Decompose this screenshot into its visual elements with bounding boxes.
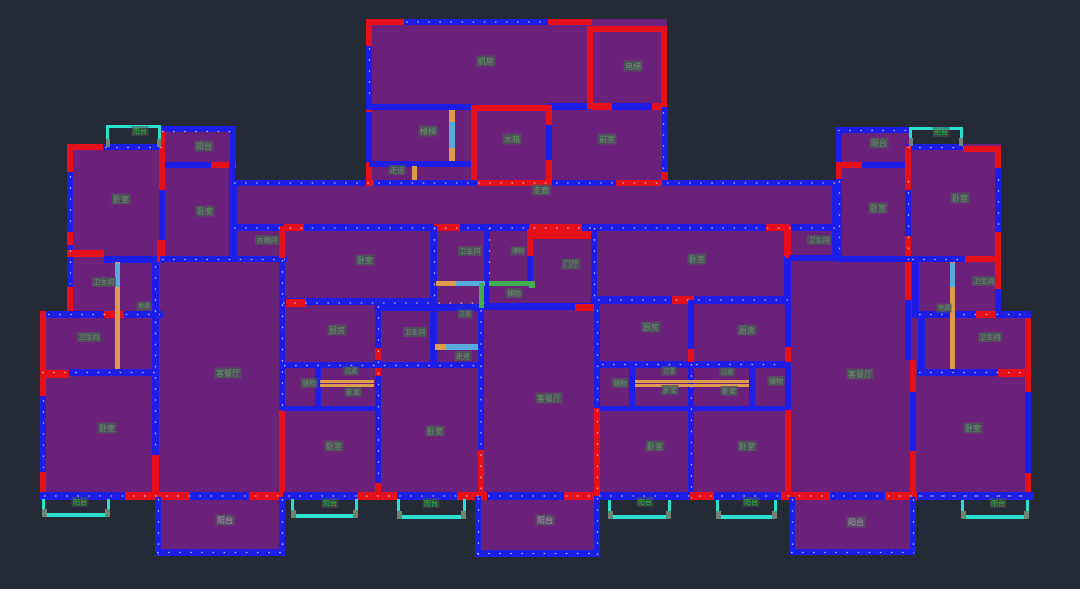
svg-text:储物: 储物 xyxy=(512,247,524,255)
svg-text:阳台: 阳台 xyxy=(196,141,212,151)
svg-text:过道: 过道 xyxy=(345,367,357,375)
svg-text:卧室: 卧室 xyxy=(663,386,677,395)
svg-text:阳台: 阳台 xyxy=(73,498,87,507)
svg-text:阳台: 阳台 xyxy=(744,498,758,507)
svg-text:厨房: 厨房 xyxy=(643,322,659,332)
svg-text:客餐厅: 客餐厅 xyxy=(216,368,240,378)
svg-text:卫生间: 卫生间 xyxy=(974,277,995,286)
svg-text:卧室: 卧室 xyxy=(427,426,443,436)
svg-text:卧室: 卧室 xyxy=(952,193,968,203)
svg-text:卫生间: 卫生间 xyxy=(94,278,115,287)
svg-text:过道: 过道 xyxy=(721,368,733,376)
svg-text:客餐厅: 客餐厅 xyxy=(848,369,872,379)
svg-text:阳台: 阳台 xyxy=(991,499,1005,508)
svg-text:卧室: 卧室 xyxy=(870,203,886,213)
svg-text:门厅: 门厅 xyxy=(563,259,579,269)
svg-text:阳台: 阳台 xyxy=(537,515,553,525)
svg-text:卧室: 卧室 xyxy=(326,441,342,451)
svg-text:储物: 储物 xyxy=(769,377,783,386)
svg-text:卧室: 卧室 xyxy=(346,388,360,397)
svg-text:走廊: 走廊 xyxy=(533,185,549,195)
svg-text:衣帽间: 衣帽间 xyxy=(257,236,278,245)
svg-text:卧室: 卧室 xyxy=(689,254,705,264)
svg-text:卧室: 卧室 xyxy=(647,441,663,451)
svg-text:储物: 储物 xyxy=(302,379,316,388)
svg-text:卧室: 卧室 xyxy=(739,441,755,451)
svg-text:前室: 前室 xyxy=(599,134,615,144)
svg-text:地漏: 地漏 xyxy=(138,302,150,310)
svg-text:阳台: 阳台 xyxy=(934,128,948,137)
svg-text:卧室: 卧室 xyxy=(197,206,213,216)
svg-text:卧室: 卧室 xyxy=(357,255,373,265)
svg-text:卫生间: 卫生间 xyxy=(460,247,481,256)
svg-text:厨房: 厨房 xyxy=(329,325,345,335)
svg-text:电梯: 电梯 xyxy=(625,61,641,71)
svg-text:客餐厅: 客餐厅 xyxy=(537,393,561,403)
svg-text:阳台: 阳台 xyxy=(424,499,438,508)
svg-text:地漏: 地漏 xyxy=(938,304,950,312)
svg-text:机房: 机房 xyxy=(478,56,494,66)
svg-text:卧室: 卧室 xyxy=(965,423,981,433)
svg-text:卫生间: 卫生间 xyxy=(980,333,1001,342)
svg-text:阳台: 阳台 xyxy=(217,515,233,525)
svg-text:卧室: 卧室 xyxy=(99,423,115,433)
svg-text:卫生间: 卫生间 xyxy=(405,328,426,337)
svg-text:楼梯: 楼梯 xyxy=(420,126,436,136)
svg-text:走道: 走道 xyxy=(456,352,470,361)
svg-text:阳台: 阳台 xyxy=(871,138,887,148)
svg-text:卧室: 卧室 xyxy=(722,387,736,396)
svg-text:过道: 过道 xyxy=(663,367,675,375)
svg-text:阳台: 阳台 xyxy=(323,499,337,508)
svg-text:卫生间: 卫生间 xyxy=(809,236,830,245)
svg-text:阳台: 阳台 xyxy=(133,127,147,136)
svg-text:阳台: 阳台 xyxy=(638,498,652,507)
svg-text:走道: 走道 xyxy=(390,166,404,175)
svg-text:水箱: 水箱 xyxy=(504,134,520,144)
svg-text:厨房: 厨房 xyxy=(739,325,755,335)
svg-text:卫生间: 卫生间 xyxy=(79,333,100,342)
svg-text:过道: 过道 xyxy=(459,310,471,318)
svg-text:储物: 储物 xyxy=(507,289,521,298)
svg-text:卧室: 卧室 xyxy=(113,194,129,204)
svg-text:储物: 储物 xyxy=(613,379,627,388)
svg-text:阳台: 阳台 xyxy=(848,517,864,527)
